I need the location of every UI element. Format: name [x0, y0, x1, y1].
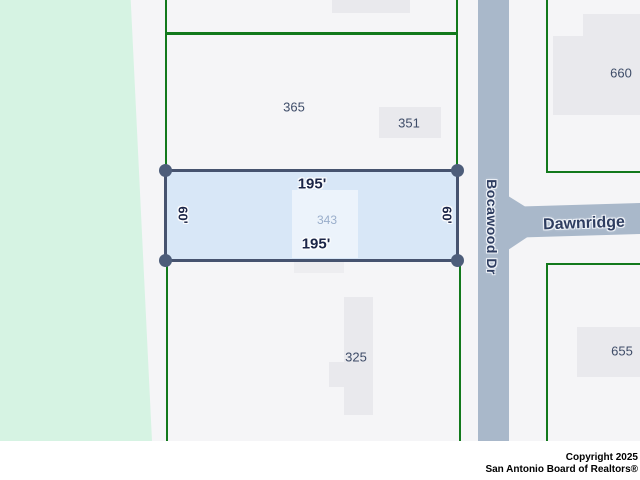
dimension-left-label: 60': [176, 206, 191, 224]
building-footprint-top: [332, 0, 410, 13]
lot-660-label: 660: [610, 66, 632, 81]
parcel-line-west-lower: [166, 261, 168, 441]
parcel-line-660-west: [546, 0, 548, 173]
plat-map-screenshot: 365 351 325 660 655 343 195' 195' 60' 60…: [0, 0, 640, 480]
parcel-line-west-upper: [165, 0, 167, 171]
bocawood-street-label: Bocawood Dr: [484, 179, 500, 275]
building-footprint-660-wing: [553, 36, 584, 115]
lot-351-label: 351: [398, 116, 420, 131]
parcel-line-east-upper: [456, 0, 458, 171]
parcel-line-660-south: [546, 171, 640, 173]
lot-corner-dot-se: [451, 254, 464, 267]
dimension-right-label: 60': [440, 206, 455, 224]
parcel-line-east-lower: [459, 261, 461, 441]
map-canvas[interactable]: 365 351 325 660 655 343 195' 195' 60' 60…: [0, 0, 640, 441]
lot-corner-dot-sw: [159, 254, 172, 267]
copyright-notice: Copyright 2025 San Antonio Board of Real…: [485, 452, 638, 476]
copyright-line1: Copyright 2025: [485, 452, 638, 464]
building-footprint-343-south: [294, 262, 344, 273]
greenbelt-area: [0, 0, 152, 441]
dimension-top-label: 195': [298, 176, 327, 193]
lot-corner-dot-ne: [451, 164, 464, 177]
lot-325-label: 325: [345, 350, 367, 365]
parcel-line-655-west: [546, 263, 548, 441]
subject-lot-number: 343: [317, 213, 337, 227]
dimension-bottom-label: 195': [302, 236, 331, 253]
lot-655-label: 655: [611, 344, 633, 359]
building-footprint-325-wing: [329, 362, 345, 387]
lot-365-label: 365: [283, 100, 305, 115]
copyright-line2: San Antonio Board of Realtors®: [485, 464, 638, 476]
parcel-line-north-horizontal: [165, 32, 458, 35]
parcel-line-655-north: [546, 263, 640, 265]
lot-corner-dot-nw: [159, 164, 172, 177]
building-footprint-660-main: [583, 14, 640, 115]
dawnridge-street-label: Dawnridge: [543, 214, 625, 235]
